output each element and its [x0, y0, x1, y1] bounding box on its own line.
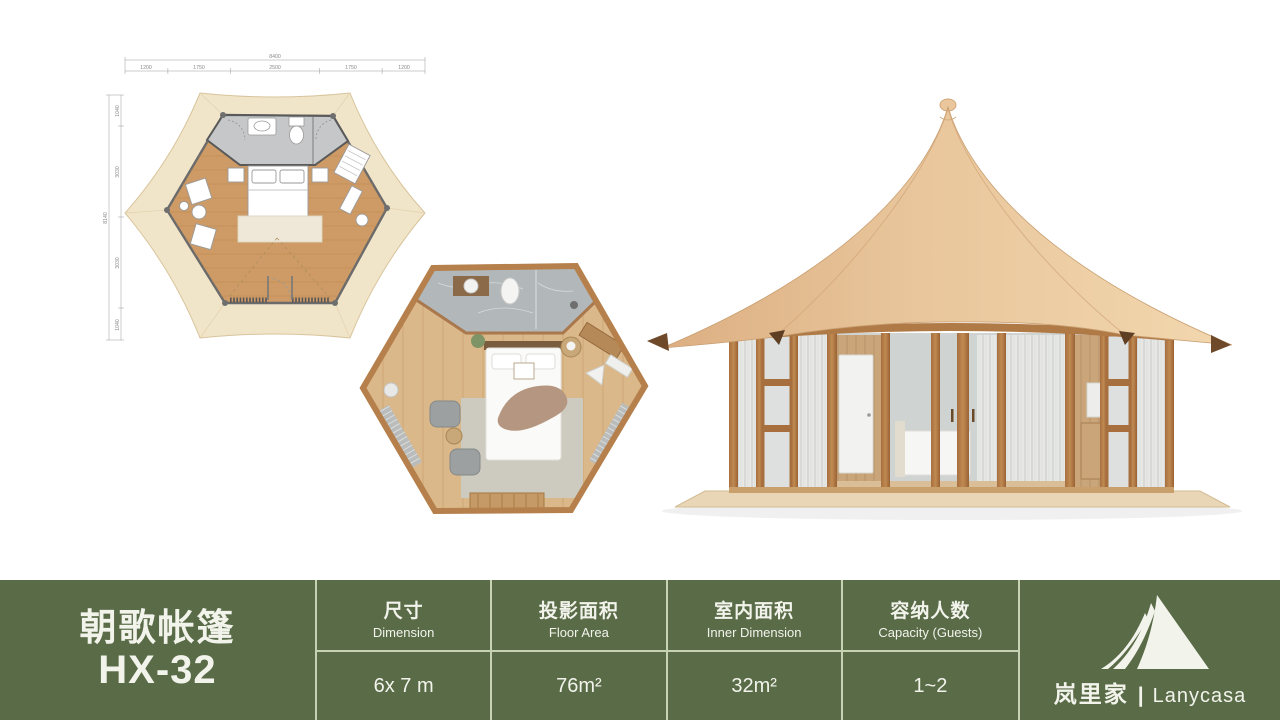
floor-lamp	[384, 383, 398, 397]
lanycasa-tent-logo-icon	[1075, 591, 1225, 673]
nightstand-left	[228, 168, 244, 182]
rug	[238, 216, 322, 242]
brand-name-zh: 岚里家	[1054, 675, 1129, 709]
pillow	[280, 170, 304, 183]
pillow	[252, 170, 276, 183]
spec-sheet-slide: 8400 1200 1750 2500 1750 1200 8140 1040 …	[0, 0, 1280, 720]
model-code: HX-32	[98, 648, 216, 693]
model-name: 朝歌帐篷	[80, 607, 236, 648]
spec-header-inner-dimension: 室内面积 Inner Dimension	[668, 580, 843, 652]
deck-platform	[675, 491, 1230, 507]
spec-header-capacity: 容纳人数 Capacity (Guests)	[843, 580, 1018, 652]
svg-text:2500: 2500	[269, 65, 281, 71]
curtain	[796, 335, 831, 491]
bench	[470, 493, 544, 509]
side-table	[192, 205, 206, 219]
spec-table: 尺寸 Dimension 投影面积 Floor Area 室内面积 Inner …	[315, 580, 1020, 720]
spec-bar: 朝歌帐篷 HX-32 尺寸 Dimension 投影面积 Floor Area …	[0, 580, 1280, 720]
svg-text:8140: 8140	[103, 212, 109, 224]
toilet	[501, 278, 519, 304]
svg-text:3030: 3030	[115, 257, 121, 269]
brand-cell: 岚里家 | Lanycasa	[1020, 580, 1280, 720]
tent-exterior-render	[645, 83, 1255, 523]
brand-name-en: Lanycasa	[1153, 685, 1247, 708]
lamp	[567, 342, 576, 351]
armchair	[430, 401, 460, 427]
svg-text:3030: 3030	[115, 166, 121, 178]
door-handle	[972, 409, 975, 422]
svg-text:1040: 1040	[115, 105, 121, 117]
floor-plan-3d-top-view	[358, 253, 653, 548]
nightstand-right	[312, 168, 328, 182]
spec-header-dimension: 尺寸 Dimension	[317, 580, 492, 652]
svg-text:1750: 1750	[345, 65, 357, 71]
canvas-roof	[647, 99, 1232, 353]
brand-wordmark: 岚里家 | Lanycasa	[1054, 675, 1247, 709]
stool	[180, 202, 189, 211]
spec-value-capacity: 1~2	[843, 652, 1018, 720]
breakfast-tray	[514, 363, 534, 379]
svg-text:1750: 1750	[193, 65, 205, 71]
spec-value-dimension: 6x 7 m	[317, 652, 492, 720]
svg-text:1200: 1200	[398, 65, 410, 71]
eave-bracket-left	[647, 333, 669, 351]
side-table	[446, 428, 462, 444]
spec-value-floor-area: 76m²	[492, 652, 667, 720]
svg-text:1040: 1040	[115, 319, 121, 331]
curtain	[977, 335, 1069, 491]
glazed-walls	[729, 323, 1174, 493]
sill	[729, 487, 1174, 493]
spec-value-inner-dimension: 32m²	[668, 652, 843, 720]
sink	[248, 118, 276, 135]
spec-header-floor-area: 投影面积 Floor Area	[492, 580, 667, 652]
eave-bracket-right	[1211, 335, 1231, 353]
shower-head	[570, 301, 578, 309]
ladder-window-left	[763, 335, 791, 491]
toilet	[289, 117, 304, 126]
svg-text:8400: 8400	[269, 54, 281, 60]
ladder-window-right	[1107, 335, 1130, 491]
desk-chair	[356, 214, 368, 226]
door-handle	[951, 409, 954, 422]
svg-text:1200: 1200	[140, 65, 152, 71]
armchair	[450, 449, 480, 475]
model-title-cell: 朝歌帐篷 HX-32	[0, 580, 315, 720]
brand-divider: |	[1138, 684, 1144, 708]
plant	[471, 334, 485, 348]
